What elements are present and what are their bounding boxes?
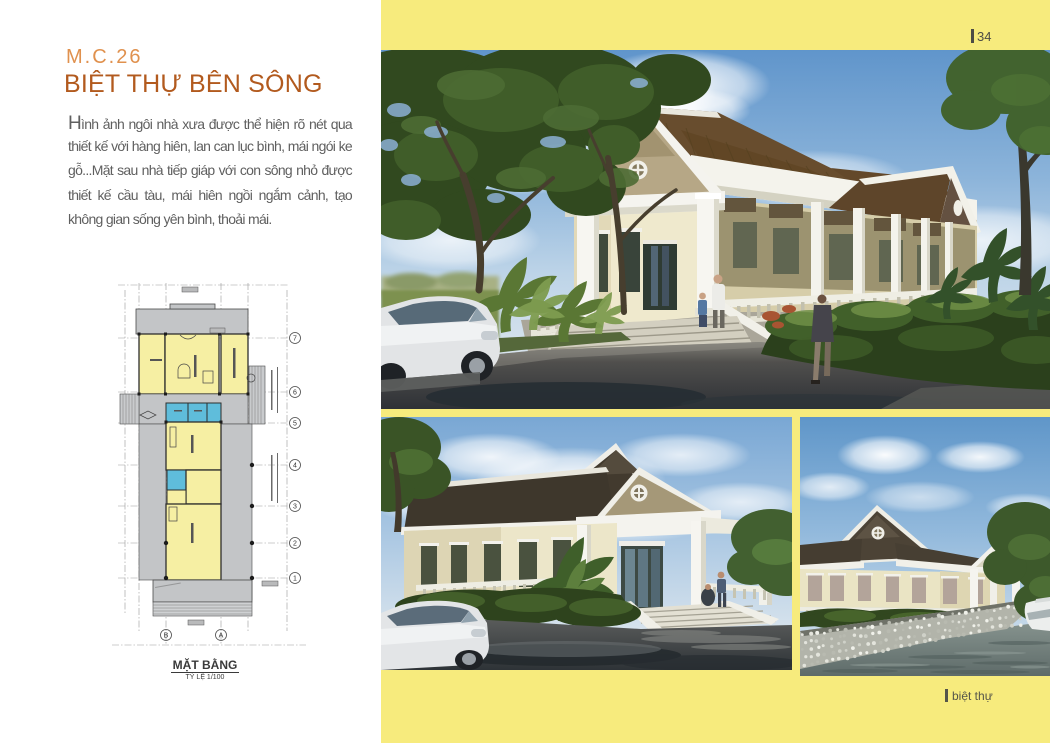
svg-text:A: A [219,633,224,640]
svg-text:3: 3 [293,504,297,511]
svg-text:5: 5 [293,421,297,428]
svg-text:6: 6 [293,390,297,397]
svg-text:B: B [164,633,169,640]
svg-text:4: 4 [293,463,297,470]
svg-text:7: 7 [293,336,297,343]
svg-text:1: 1 [293,576,297,583]
svg-text:2: 2 [293,541,297,548]
